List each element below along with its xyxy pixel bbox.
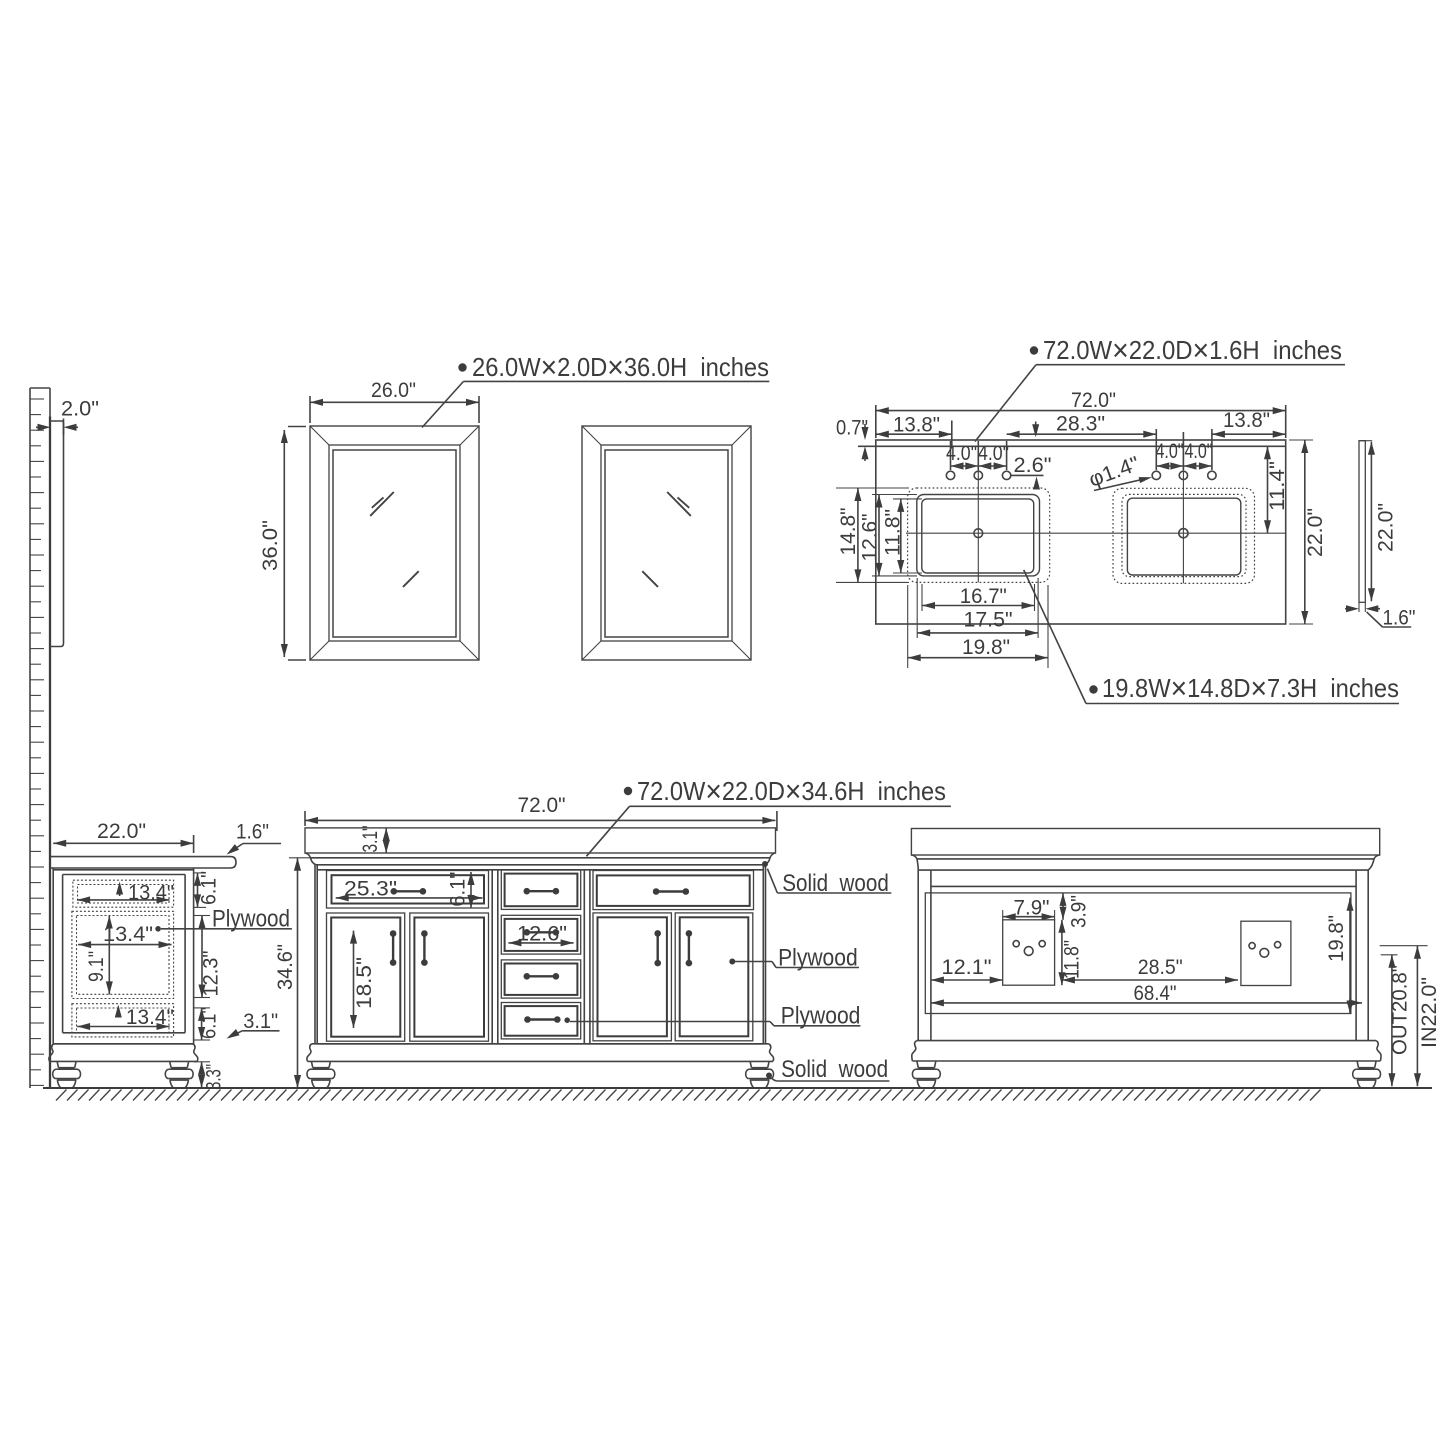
svg-text:2.6": 2.6" <box>1014 454 1052 477</box>
svg-text:3.3": 3.3" <box>203 1064 226 1090</box>
svg-text:12.6": 12.6" <box>517 923 567 946</box>
svg-text:28.5": 28.5" <box>1138 956 1183 979</box>
svg-text:6.1": 6.1" <box>447 872 470 907</box>
svg-text:28.3": 28.3" <box>1056 413 1105 436</box>
svg-text:1.6": 1.6" <box>1383 607 1416 630</box>
svg-text:72.0": 72.0" <box>518 794 566 817</box>
svg-text:36.0": 36.0" <box>259 520 282 571</box>
svg-text:22.0": 22.0" <box>1374 503 1397 552</box>
svg-text:3.9": 3.9" <box>1068 895 1091 928</box>
svg-text:18.5": 18.5" <box>353 957 376 1009</box>
svg-text:22.0": 22.0" <box>97 820 146 843</box>
svg-text:72.0": 72.0" <box>1071 389 1116 412</box>
svg-text:Plywood: Plywood <box>781 1003 861 1030</box>
svg-text:12.3": 12.3" <box>200 951 223 997</box>
svg-text:0.7": 0.7" <box>836 417 868 440</box>
svg-text:Plywood: Plywood <box>778 945 858 972</box>
svg-text:4.0": 4.0" <box>1185 440 1213 463</box>
svg-text:13.8": 13.8" <box>893 414 940 437</box>
svg-text:6.1": 6.1" <box>198 871 221 905</box>
svg-text:11.8": 11.8" <box>1061 940 1084 979</box>
svg-text:9.1": 9.1" <box>85 951 108 982</box>
svg-text:68.4": 68.4" <box>1134 982 1177 1005</box>
svg-text:17.5": 17.5" <box>964 609 1013 632</box>
svg-text:4.0": 4.0" <box>946 442 977 465</box>
svg-text:2.0": 2.0" <box>61 398 99 421</box>
svg-text:19.8": 19.8" <box>962 636 1010 659</box>
svg-text:13.4": 13.4" <box>128 882 174 905</box>
svg-text:4.0": 4.0" <box>1156 440 1184 463</box>
svg-text:14.8": 14.8" <box>837 508 860 556</box>
svg-text:19.8": 19.8" <box>1325 915 1348 962</box>
svg-text:13.4": 13.4" <box>126 1006 174 1029</box>
svg-text:72.0W×​22.0D×​1.6H inches: 72.0W×​22.0D×​1.6H inches <box>1043 333 1342 368</box>
svg-text:7.9": 7.9" <box>1014 897 1050 920</box>
svg-text:22.0": 22.0" <box>1304 508 1327 557</box>
svg-text:4.0": 4.0" <box>978 442 1009 465</box>
svg-text:1.6": 1.6" <box>236 821 269 844</box>
svg-text:Solid wood: Solid wood <box>782 870 889 897</box>
svg-text:25.3": 25.3" <box>344 878 397 901</box>
svg-text:26.0": 26.0" <box>371 379 416 402</box>
svg-text:26.0W×​2.0D×​36.0H inches: 26.0W×​2.0D×​36.0H inches <box>472 350 769 385</box>
svg-text:IN22.0": IN22.0" <box>1418 977 1441 1048</box>
svg-text:11.4": 11.4" <box>1266 461 1289 511</box>
svg-text:Plywood: Plywood <box>212 906 290 933</box>
svg-text:11.8": 11.8" <box>882 509 905 556</box>
svg-text:12.1": 12.1" <box>942 956 992 979</box>
svg-text:16.7": 16.7" <box>960 585 1007 608</box>
svg-text:3.1": 3.1" <box>243 1010 278 1033</box>
svg-text:6.1": 6.1" <box>198 1007 221 1039</box>
svg-text:3.1": 3.1" <box>359 826 382 853</box>
svg-text:12.6": 12.6" <box>859 514 882 562</box>
svg-text:19.8W×​14.8D×​7.3H inches: 19.8W×​14.8D×​7.3H inches <box>1102 671 1399 706</box>
svg-text:Solid wood: Solid wood <box>781 1056 888 1083</box>
svg-text:72.0W×​22.0D×​34.6H inches: 72.0W×​22.0D×​34.6H inches <box>637 774 946 809</box>
svg-text:13.8": 13.8" <box>1223 409 1270 432</box>
svg-text:34.6": 34.6" <box>274 944 297 990</box>
svg-text:OUT20.8": OUT20.8" <box>1389 965 1412 1055</box>
